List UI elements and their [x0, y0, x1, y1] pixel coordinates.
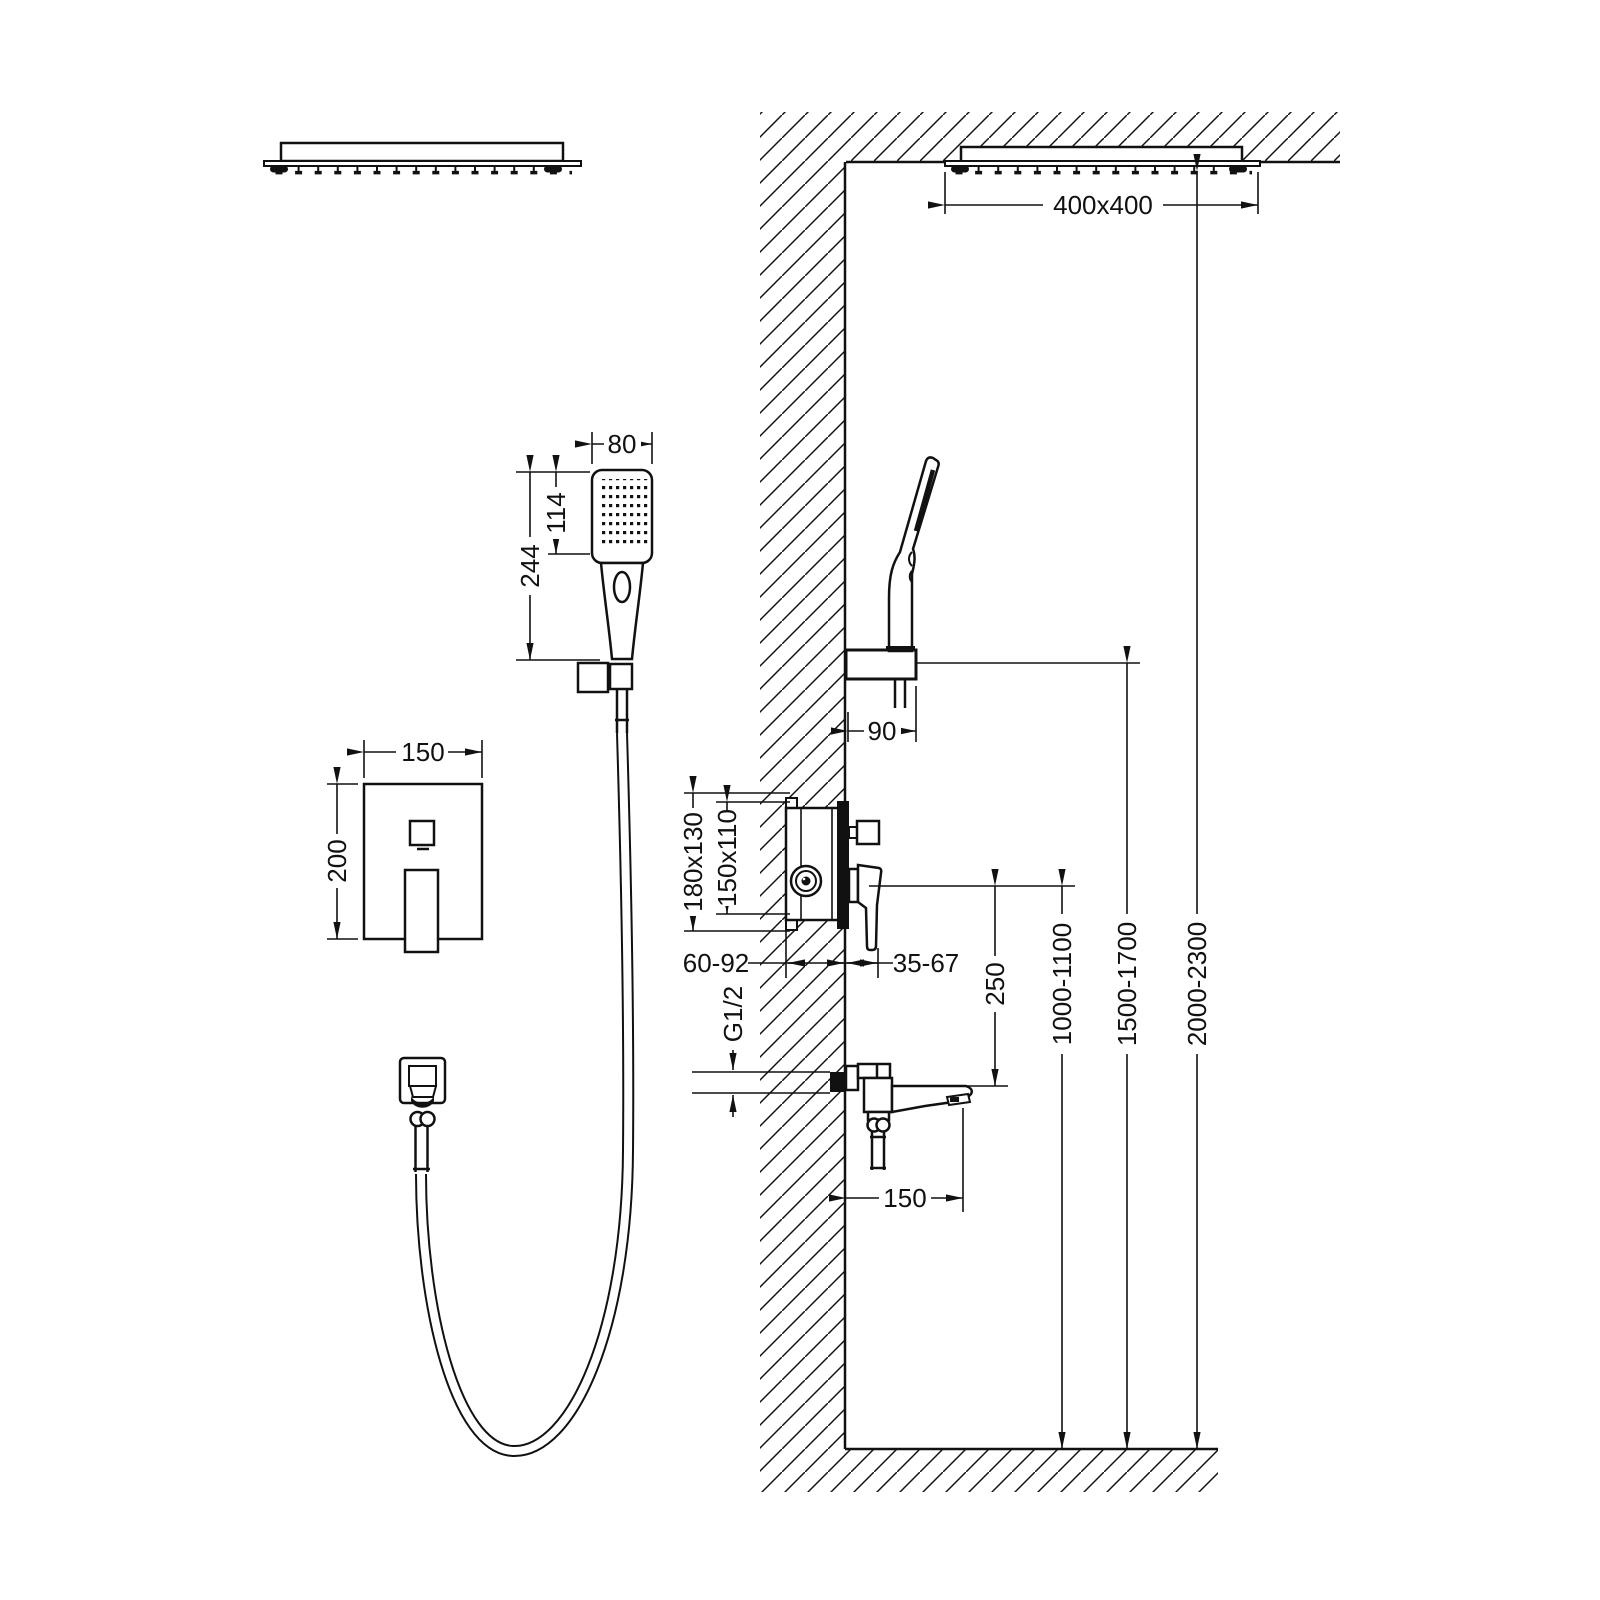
dim-plate-width: 150: [401, 737, 444, 767]
cartridge-dot: [803, 878, 806, 881]
holder-block: [578, 663, 608, 692]
supply-stub: [830, 1072, 846, 1092]
spout-nut: [877, 1119, 890, 1132]
aerator-slot: [950, 1097, 959, 1102]
ceiling-head-plate: [945, 161, 1260, 166]
lever-handle: [405, 870, 438, 952]
height-dimensions: 250 1000-1100 1500-1700 2000-2300: [980, 171, 1212, 1449]
ceiling-head-body: [961, 147, 1242, 162]
hand-shower-side: [889, 457, 939, 651]
rain-head-detail: [264, 143, 581, 173]
trim-plate-edge: [837, 801, 849, 929]
dim-spout-to-valve-height: 250: [980, 962, 1010, 1005]
dim-pipe-thread: G1/2: [718, 986, 748, 1042]
spout-escutcheon: [846, 1066, 858, 1090]
union-body: [409, 1066, 436, 1086]
dim-hand-shower-head-length: 114: [541, 492, 571, 533]
dim-valve-rough-opening: 180x130: [678, 812, 708, 912]
installation-diagram-page: 400x400 80 114 244: [0, 0, 1600, 1600]
dim-spout-length: 150: [883, 1183, 926, 1213]
wall-union-detail: [400, 1058, 445, 1172]
dim-holder-mount-height: 1500-1700: [1112, 922, 1142, 1046]
dim-holder-offset: 90: [868, 716, 897, 746]
ceiling-shower-head: 400x400: [945, 147, 1260, 220]
hand-shower-detail: 80 114 244: [515, 429, 652, 733]
end-nozzle-left: [951, 166, 969, 173]
cartridge-stem: [802, 877, 811, 886]
end-nozzle-right: [1229, 166, 1247, 173]
mode-button: [614, 572, 630, 602]
dim-ceiling-head-size: 400x400: [1053, 190, 1153, 220]
union-cone: [410, 1086, 436, 1097]
dim-plate-height: 200: [322, 839, 352, 882]
hose-connector: [610, 664, 632, 689]
dim-hand-shower-length: 244: [515, 544, 545, 587]
valve-box: [786, 808, 845, 920]
rain-head-body: [281, 143, 563, 161]
mixer-plate-detail: 150 200: [322, 737, 482, 952]
end-nozzle-right: [544, 166, 562, 173]
dim-valve-mount-height: 1000-1100: [1047, 923, 1077, 1045]
dim-ceiling-head-height: 2000-2300: [1182, 922, 1212, 1046]
dim-valve-recess-depth: 60-92: [683, 948, 750, 978]
rain-head-plate: [264, 161, 581, 166]
dim-valve-box-size: 150x110: [712, 809, 742, 907]
end-nozzle-left: [270, 166, 288, 173]
union-nut: [421, 1112, 435, 1126]
wall-holder-block: [846, 650, 916, 679]
bath-spout: 150: [846, 1064, 1008, 1213]
dim-valve-protrusion: 35-67: [893, 948, 960, 978]
lever-stem: [849, 869, 858, 902]
lever-side: [858, 865, 881, 950]
spray-face-dots: [600, 479, 648, 549]
spout-block: [864, 1078, 892, 1112]
diverter-knob: [857, 821, 879, 844]
concealed-valve: 180x130 150x110 60-92 35-67: [678, 793, 1075, 978]
installation-diagram: 400x400 80 114 244: [0, 0, 1600, 1600]
diverter-button: [410, 821, 434, 845]
spout-inlet-body: [858, 1064, 890, 1078]
dim-hand-shower-width: 80: [608, 429, 637, 459]
wall-hand-shower: 90: [846, 457, 1140, 746]
